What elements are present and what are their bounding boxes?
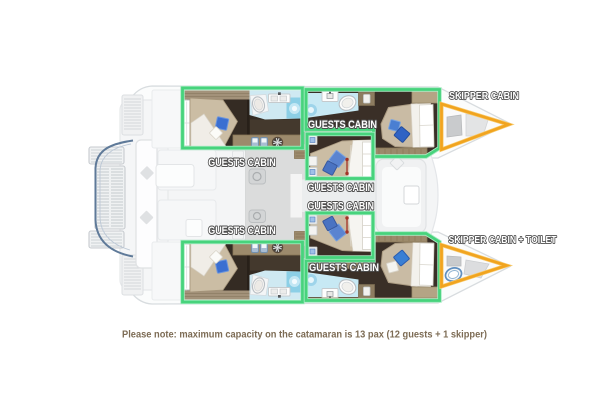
svg-text:GUESTS CABIN: GUESTS CABIN bbox=[308, 201, 375, 213]
svg-text:Please note: maximum capacity: Please note: maximum capacity on the cat… bbox=[122, 329, 487, 341]
svg-text:GUESTS CABIN: GUESTS CABIN bbox=[308, 119, 377, 131]
svg-text:GUESTS CABIN: GUESTS CABIN bbox=[309, 262, 379, 274]
svg-text:GUESTS CABIN: GUESTS CABIN bbox=[208, 225, 276, 237]
svg-text:SKIPPER CABIN + TOILET: SKIPPER CABIN + TOILET bbox=[449, 235, 557, 246]
svg-text:SKIPPER CABIN: SKIPPER CABIN bbox=[449, 91, 519, 102]
svg-text:GUESTS CABIN: GUESTS CABIN bbox=[308, 182, 375, 194]
svg-text:GUESTS CABIN: GUESTS CABIN bbox=[208, 157, 276, 169]
